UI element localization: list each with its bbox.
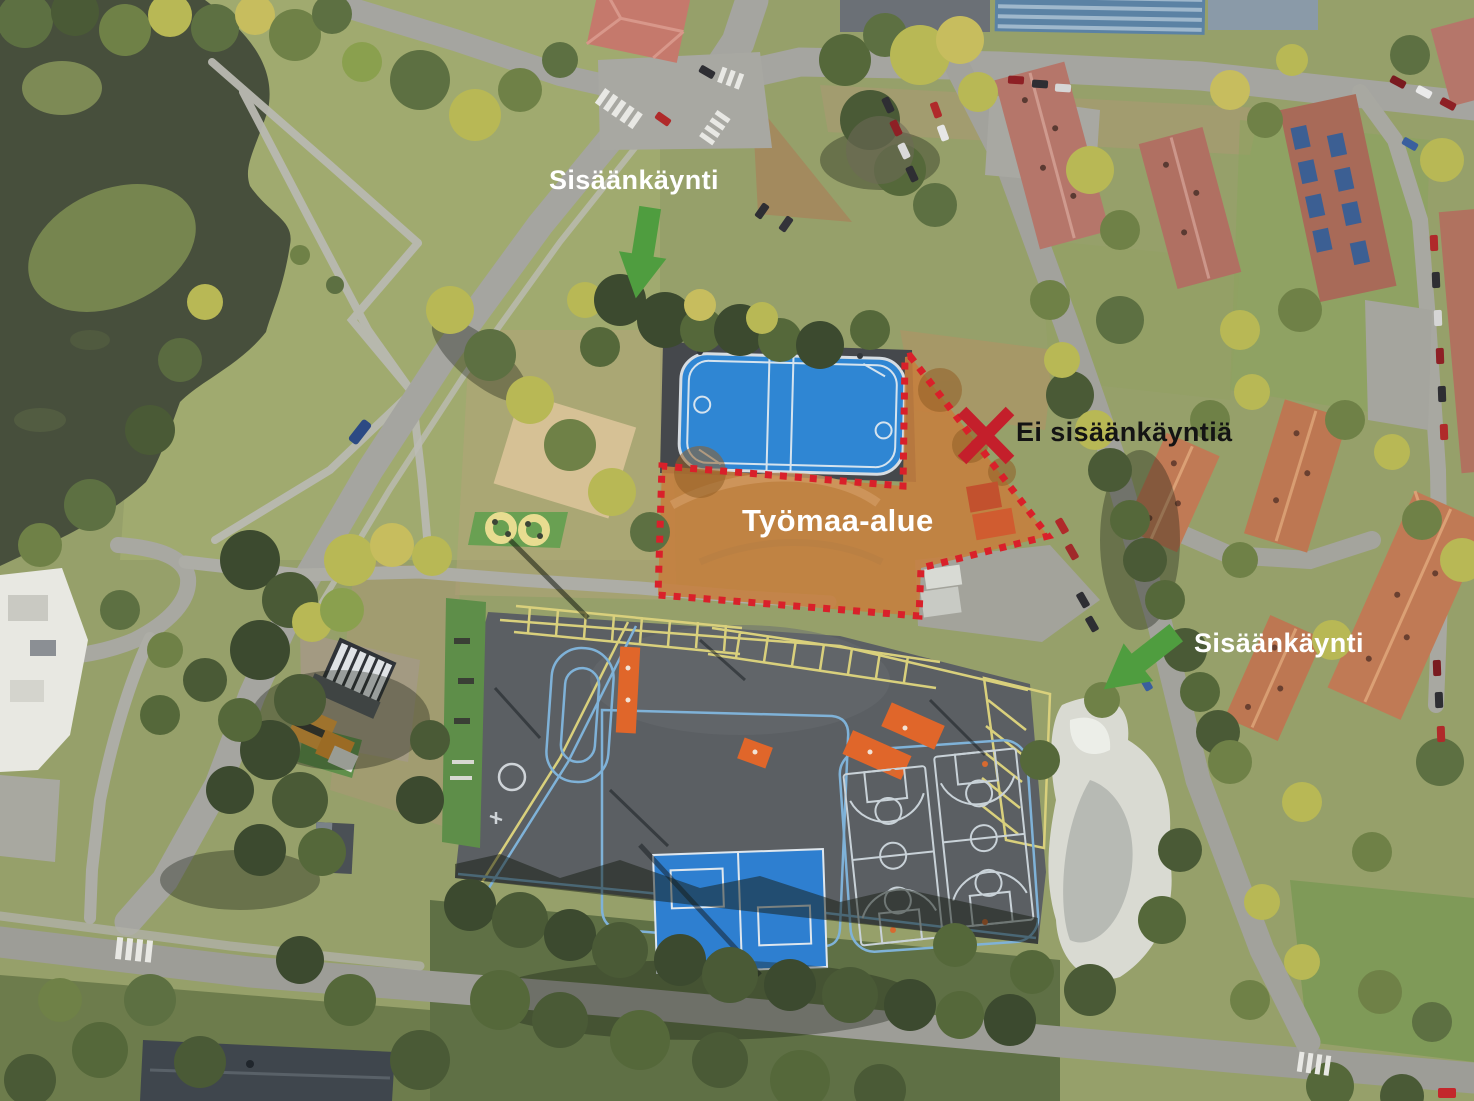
entrance-label-right: Sisäänkäynti bbox=[1194, 630, 1364, 657]
entrance-label-top: Sisäänkäynti bbox=[549, 167, 719, 194]
construction-area-label: Työmaa-alue bbox=[742, 505, 934, 536]
aerial-map: Sisäänkäynti Ei sisäänkäyntiä Työmaa-alu… bbox=[0, 0, 1474, 1101]
no-entrance-label: Ei sisäänkäyntiä bbox=[1016, 419, 1233, 446]
aerial-photo bbox=[0, 0, 1474, 1101]
